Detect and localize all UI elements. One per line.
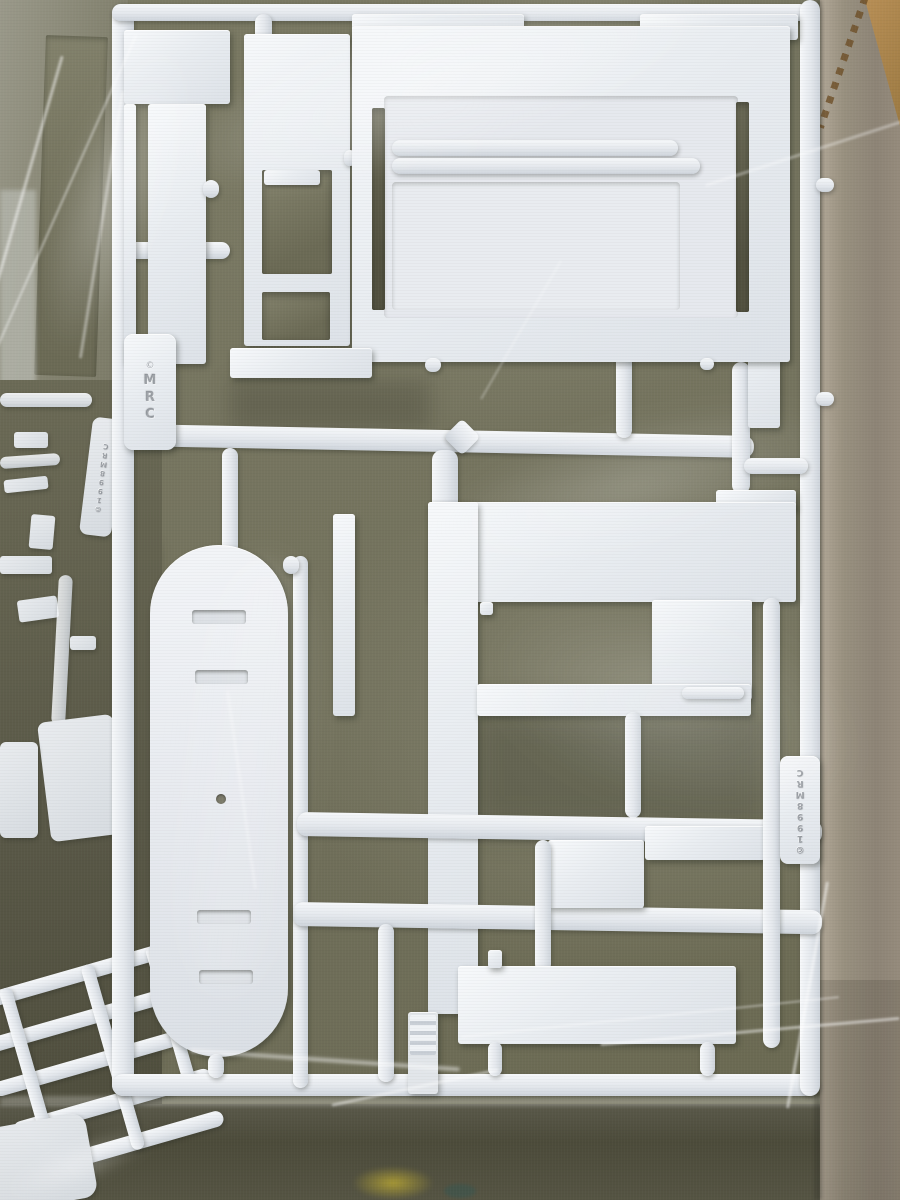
photo-model-kit-sprue-in-bag: ©1998MRC: [0, 0, 900, 1200]
part-band-below-a: [230, 348, 372, 378]
part-vertical-bar-mid: [333, 514, 355, 716]
stub-band-to-rail-2: [488, 1042, 502, 1076]
panel-c-slot-left: [372, 108, 385, 310]
panel-a-window-2: [262, 292, 330, 340]
deck-hole: [216, 794, 226, 804]
part-rect-1: [548, 840, 644, 908]
shadow-window-area: [470, 710, 770, 830]
deck-connector-nub: [283, 556, 299, 574]
cwall-left-stem: [428, 502, 478, 1014]
mold-tab-mrc: © MRC: [124, 334, 176, 450]
panel-b-cap: [124, 30, 230, 104]
panel-b-nub: [203, 180, 219, 198]
mold-stamp-text-right: ©1998MRC: [795, 766, 805, 854]
part-bottom-band-tab: [488, 950, 502, 968]
rail-right-nub-2: [816, 392, 834, 406]
cluster-panel-2: [0, 742, 38, 838]
cluster-part-4: [0, 556, 52, 574]
cluster-runner-1: [0, 393, 92, 407]
panel-c-slot-right: [736, 102, 749, 312]
sprue-part-corner-blob: [0, 1112, 99, 1200]
panel-a-window-flap: [264, 170, 320, 185]
panel-c-nub-1: [425, 358, 441, 372]
runner-v-535: [535, 840, 551, 972]
box-side-wall-shade: [820, 980, 900, 1200]
cluster-part-3: [29, 514, 56, 550]
panel-a-window-1: [262, 170, 332, 274]
bag-highlight-patch: [0, 190, 36, 400]
brand-mark: MRC: [143, 373, 158, 424]
panel-b-column: [148, 104, 206, 364]
part-ribbed: [408, 1012, 438, 1094]
part-rect-2: [645, 826, 765, 860]
stub-below-panel-c: [616, 350, 632, 438]
cwall-shelf-strip: [682, 687, 744, 699]
panel-c-field: [392, 182, 680, 310]
part-bottom-band: [458, 966, 736, 1044]
stub-window-2: [625, 712, 641, 818]
box-edge-strip-top-left: [34, 35, 108, 377]
runner-link-to-rail: [744, 458, 808, 474]
deck-slot-3: [197, 910, 251, 924]
cwall-top-band: [428, 502, 796, 602]
rail-right-nub-1: [816, 178, 834, 192]
panel-b-sliver: [124, 104, 136, 364]
stub-deck-top: [222, 448, 238, 554]
stub-band-to-rail-1: [700, 1042, 715, 1076]
part-ribbed-ridges: [410, 1015, 436, 1055]
mold-stamp-tab-right: ©1998MRC: [780, 756, 820, 864]
panel-c-strip-1: [392, 140, 678, 156]
panel-c-strip-2: [392, 158, 700, 174]
stub-deck-bottom: [208, 1054, 224, 1078]
mold-stamp-text-left: ©1998MRC: [94, 441, 111, 513]
shadow-mid-band: [230, 380, 430, 430]
runner-v-right-long: [763, 598, 780, 1048]
deck-slot-1: [192, 610, 246, 624]
panel-c-nub-2: [700, 358, 714, 370]
cluster-part-1: [14, 432, 48, 448]
cluster-part-6: [70, 636, 96, 650]
copyright-symbol-mark: ©: [146, 361, 155, 371]
deck-slot-4: [199, 970, 253, 984]
deck-slot-2: [195, 670, 248, 684]
cwall-window-tab: [480, 602, 493, 615]
runner-v-380: [378, 924, 394, 1082]
